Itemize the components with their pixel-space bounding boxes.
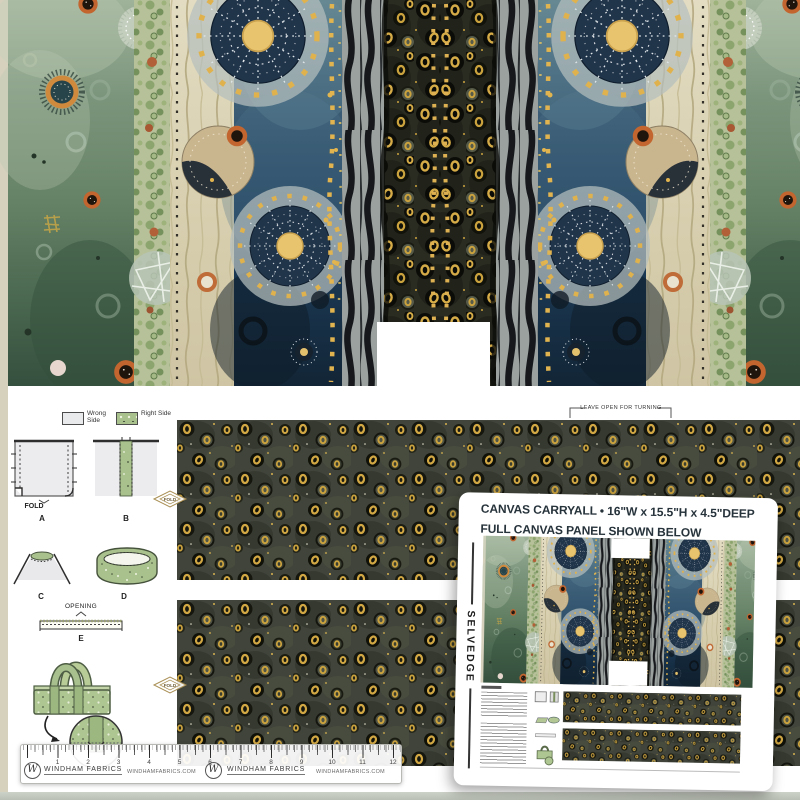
ruler-number: 8: [265, 759, 277, 766]
windham-monogram-icon: W: [205, 762, 222, 779]
mini-cut-panel-top: [563, 691, 742, 725]
right-side-label: Right Side: [141, 410, 171, 417]
diagram-e-label: E: [66, 634, 96, 643]
ruler-number: 9: [296, 759, 308, 766]
svg-text:FOLD: FOLD: [164, 683, 177, 688]
ruler-number: 3: [113, 759, 125, 766]
leave-open-label: LEAVE OPEN FOR TURNING: [577, 405, 665, 411]
fold-caption-a: FOLD: [14, 503, 54, 510]
diagram-a: [10, 436, 80, 508]
ruler: 1 2 3 4 5 6 7 8 9 10 11 12 W WINDHAM FAB…: [20, 744, 402, 784]
ruler-number: 1: [52, 759, 64, 766]
ruler-number: 5: [174, 759, 186, 766]
ruler-number: 4: [143, 759, 155, 766]
diagram-c: [8, 546, 82, 590]
opening-caption: OPENING: [56, 603, 106, 610]
detail-arrow-icon: [40, 714, 68, 744]
selvedge-label: SELVEDGE: [463, 610, 476, 682]
mini-heading: [481, 686, 501, 689]
selvedge-rule-bottom: [468, 688, 471, 768]
wrong-side-swatch: [62, 412, 84, 425]
ruler-number: 11: [357, 759, 369, 766]
fabric-art: [0, 0, 800, 386]
fold-marker-bottom: FOLD: [152, 676, 188, 694]
ruler-number: 10: [326, 759, 338, 766]
mini-diagrams: [532, 690, 561, 767]
fabric-art-print: [0, 0, 800, 386]
photo-bottom-edge: [0, 792, 800, 800]
diagram-c-label: C: [26, 592, 56, 601]
wrong-side-label: Wrong Side: [87, 410, 117, 425]
diagram-d-label: D: [109, 592, 139, 601]
windham-brand-wordmark: WINDHAM FABRICS: [44, 766, 122, 775]
card-title-line1: CANVAS CARRYALL • 16"W x 15.5"H x 4.5"DE…: [481, 502, 771, 522]
windham-website: WINDHAMFABRICS.COM: [127, 769, 196, 775]
diagram-a-label: A: [27, 514, 57, 523]
selvedge-rule-top: [471, 542, 474, 604]
windham-website: WINDHAMFABRICS.COM: [316, 769, 385, 775]
mini-text-block: [481, 692, 527, 719]
selvedge-edge-strip: [0, 386, 8, 792]
ruler-number: 7: [235, 759, 247, 766]
mini-cut-panel-bottom: [562, 728, 741, 763]
svg-text:FOLD: FOLD: [164, 497, 177, 502]
diagram-e: [38, 616, 126, 632]
windham-brand-wordmark: WINDHAM FABRICS: [227, 766, 305, 775]
ruler-number: 12: [387, 759, 399, 766]
windham-monogram-icon: W: [24, 762, 41, 779]
diagram-b-label: B: [111, 514, 141, 523]
right-side-swatch: [116, 412, 138, 425]
bag-illustration: [26, 650, 116, 720]
diagram-d: [90, 546, 164, 590]
fabric-panel-photo: Wrong Side Right Side FOLD A B: [0, 0, 800, 800]
fold-marker-top: FOLD: [152, 490, 188, 508]
ruler-number: 2: [82, 759, 94, 766]
mini-panel-baseline: [480, 767, 740, 773]
info-card: CANVAS CARRYALL • 16"W x 15.5"H x 4.5"DE…: [454, 492, 779, 791]
mini-text-block: [480, 723, 527, 766]
mini-panel-art: [480, 536, 755, 688]
